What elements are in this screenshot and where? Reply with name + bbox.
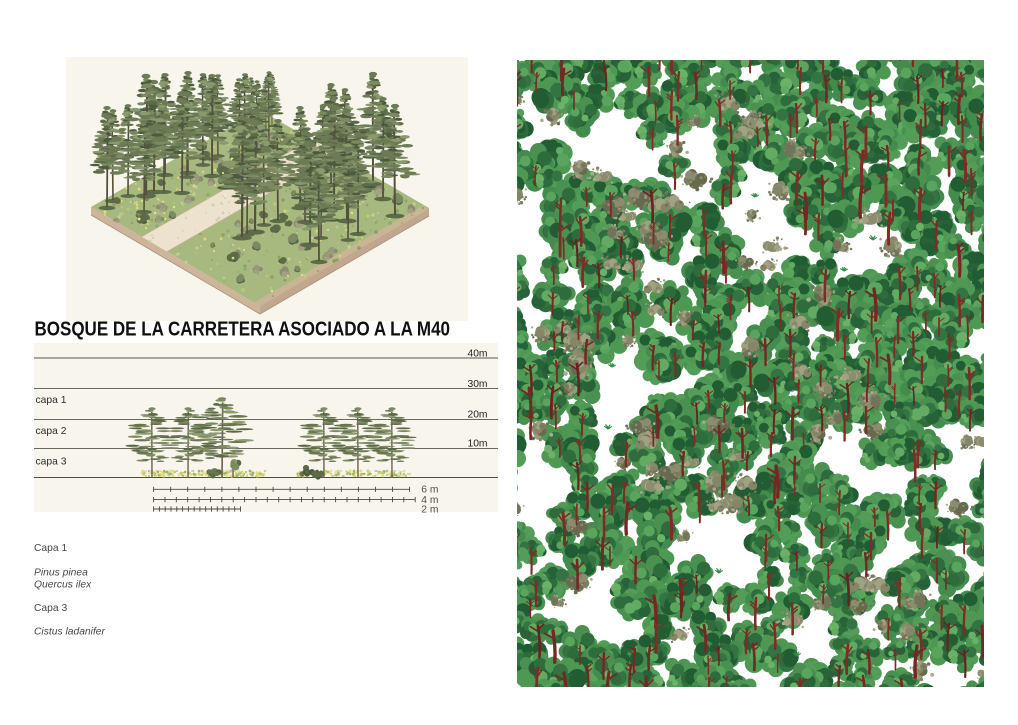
svg-text:40m: 40m [467, 348, 487, 359]
svg-text:BOSQUE DE LA CARRETERA ASOCIAD: BOSQUE DE LA CARRETERA ASOCIADO A LA M40 [35, 318, 451, 341]
svg-text:2 m: 2 m [421, 504, 438, 515]
svg-text:capa 1: capa 1 [36, 395, 67, 406]
svg-text:Capa 1: Capa 1 [34, 543, 67, 554]
svg-text:10m: 10m [467, 439, 487, 450]
svg-text:Pinus pinea: Pinus pinea [34, 568, 88, 579]
svg-text:Cistus ladanifer: Cistus ladanifer [34, 627, 106, 638]
svg-text:capa 2: capa 2 [36, 426, 67, 437]
svg-text:Quercus ilex: Quercus ilex [34, 579, 92, 590]
svg-text:capa 3: capa 3 [36, 456, 67, 467]
svg-text:Capa 3: Capa 3 [34, 603, 67, 614]
svg-text:30m: 30m [467, 379, 487, 390]
svg-text:20m: 20m [467, 410, 487, 421]
